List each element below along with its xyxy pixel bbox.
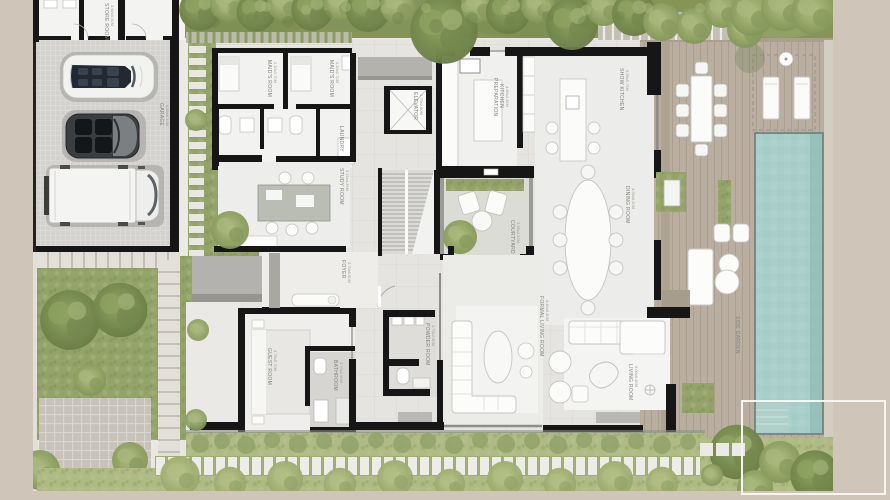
svg-text:SIDE GARDEN: SIDE GARDEN xyxy=(734,316,740,354)
svg-text:MAID'S ROOM: MAID'S ROOM xyxy=(328,60,334,97)
svg-text:4.60x4.45M: 4.60x4.45M xyxy=(505,86,510,107)
svg-text:5.15x4.35M: 5.15x4.35M xyxy=(345,170,350,191)
svg-text:2.70x5.60M: 2.70x5.60M xyxy=(347,262,352,283)
svg-text:6.00x6.45M: 6.00x6.45M xyxy=(634,366,639,387)
svg-text:2.10x2.70M: 2.10x2.70M xyxy=(335,62,340,83)
svg-text:GARAGE: GARAGE xyxy=(158,103,164,127)
svg-text:LAUNDRY: LAUNDRY xyxy=(338,126,344,152)
svg-text:MAID'S ROOM: MAID'S ROOM xyxy=(266,60,272,97)
svg-text:KITCHEN: KITCHEN xyxy=(498,84,504,108)
svg-text:3.70x2.55M: 3.70x2.55M xyxy=(339,362,344,383)
svg-text:8.85x6.10M: 8.85x6.10M xyxy=(165,105,170,126)
svg-text:4.75x5.70M: 4.75x5.70M xyxy=(273,350,278,371)
svg-text:ELEVATOR: ELEVATOR xyxy=(412,92,418,120)
svg-text:STUDY ROOM: STUDY ROOM xyxy=(338,168,344,205)
svg-text:1.75x2.80M: 1.75x2.80M xyxy=(419,94,424,115)
svg-text:DINING ROOM: DINING ROOM xyxy=(624,186,630,224)
svg-text:FOYER: FOYER xyxy=(340,260,346,279)
svg-text:2.10x3.70M: 2.10x3.70M xyxy=(273,62,278,83)
svg-text:5.95x5.75M: 5.95x5.75M xyxy=(625,70,630,91)
svg-text:1.75x2.60M: 1.75x2.60M xyxy=(431,325,436,346)
svg-text:FORMAL LIVING ROOM: FORMAL LIVING ROOM xyxy=(538,296,544,357)
svg-text:POWDER ROOM: POWDER ROOM xyxy=(424,323,430,366)
svg-text:COURTYARD: COURTYARD xyxy=(509,220,515,254)
svg-text:4.40x5.40M: 4.40x5.40M xyxy=(545,300,550,321)
svg-text:3.95x4.20M: 3.95x4.20M xyxy=(516,222,521,243)
svg-text:SHOW KITCHEN: SHOW KITCHEN xyxy=(618,68,624,111)
svg-text:4.35x6.20M: 4.35x6.20M xyxy=(631,188,636,209)
svg-text:3.60x5.00M: 3.60x5.00M xyxy=(110,5,115,26)
svg-text:PREPARATION: PREPARATION xyxy=(492,78,498,116)
svg-text:LIVING ROOM: LIVING ROOM xyxy=(627,364,633,401)
svg-text:BATHROOM: BATHROOM xyxy=(332,360,338,391)
svg-text:GUEST ROOM: GUEST ROOM xyxy=(266,348,272,385)
svg-text:STORE ROOM: STORE ROOM xyxy=(103,3,109,40)
